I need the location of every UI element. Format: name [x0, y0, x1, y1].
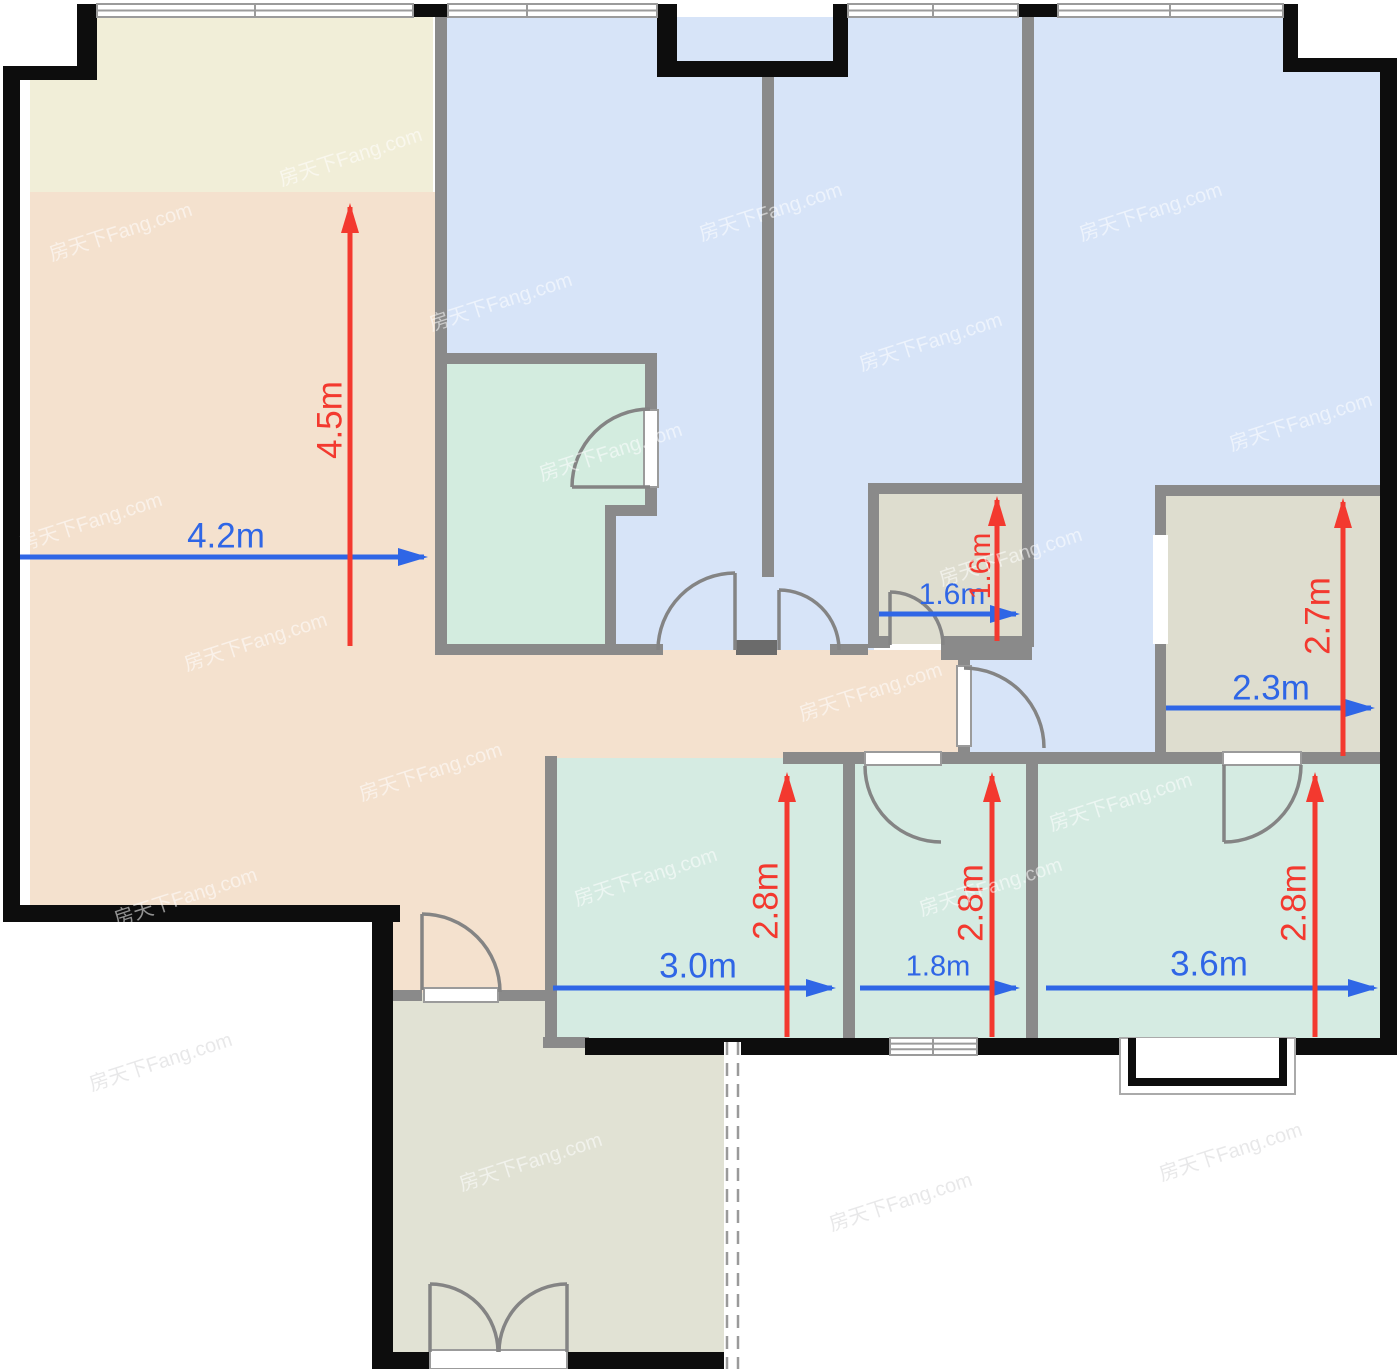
- dim-label-bedroom-south-width: 3.6m: [1170, 947, 1248, 982]
- dim-label-bedroom-south-depth: 2.8m: [1277, 864, 1312, 942]
- window-bathroom-south: [890, 1038, 977, 1055]
- dim-label-closet-depth: 1.6m: [966, 533, 996, 600]
- dim-label-bath-south-depth: 2.8m: [954, 864, 989, 942]
- dim-label-kitchen-depth: 2.8m: [749, 862, 784, 940]
- window-bedroom-north-right: [1058, 4, 1283, 17]
- room-closet: [874, 486, 1026, 644]
- room-fills: [30, 17, 1388, 1360]
- room-study: [1161, 490, 1388, 758]
- window-bedroom-north-left: [448, 4, 657, 17]
- floorplan-page: 4.2m 4.5m 1.6m 1.6m 2.3m 2.7m 3.0m 2.8m …: [0, 0, 1400, 1369]
- window-bedroom-north-middle: [848, 4, 1018, 17]
- room-kitchen: [552, 758, 849, 1046]
- room-bathroom-south: [849, 758, 1032, 1046]
- dim-label-study-depth: 2.7m: [1301, 577, 1336, 655]
- window-balcony-north: [97, 4, 413, 17]
- dim-label-study-width: 2.3m: [1232, 671, 1310, 706]
- room-bedroom-south: [1032, 758, 1388, 1046]
- dim-label-bath-south-width: 1.8m: [906, 953, 970, 982]
- dim-label-living-depth: 4.5m: [313, 381, 348, 459]
- balcony-dashed-boundary: [724, 1042, 741, 1369]
- bay-window-bedroom-south: [1120, 1038, 1295, 1094]
- dim-label-kitchen-width: 3.0m: [659, 949, 737, 984]
- opening-study-west: [1153, 535, 1168, 644]
- dim-label-living-width: 4.2m: [187, 519, 265, 554]
- floorplan-canvas: [0, 0, 1400, 1369]
